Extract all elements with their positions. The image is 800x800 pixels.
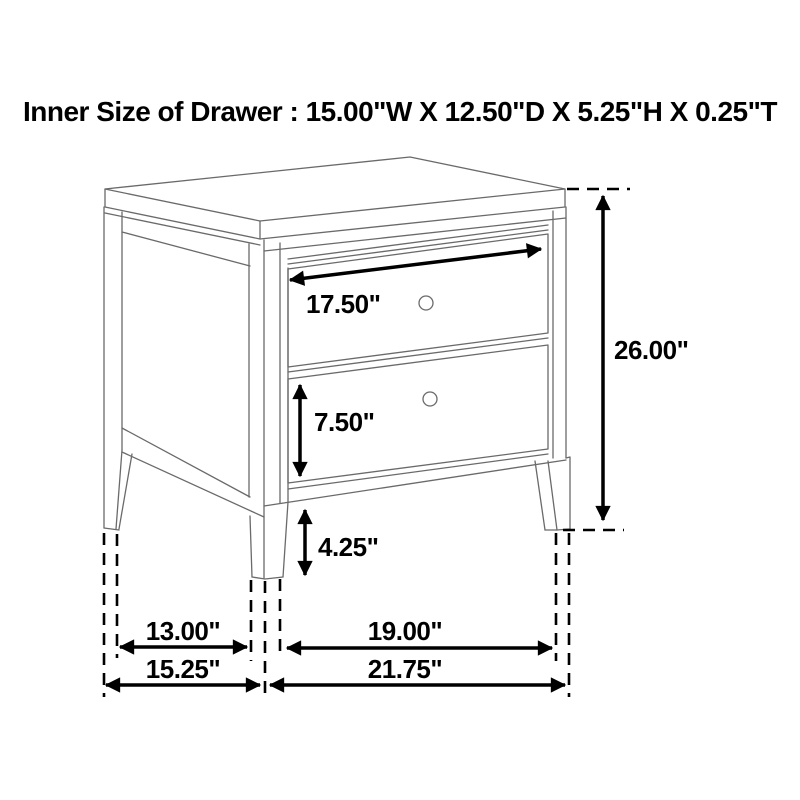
label-bottom-drawer-height: 7.50"	[314, 407, 374, 437]
label-front-inner: 19.00"	[368, 616, 442, 646]
label-overall-height: 26.00"	[614, 335, 688, 365]
drawer-top-knob	[419, 296, 433, 310]
nightstand-diagram-canvas: 17.50" 7.50" 4.25" 26.00" 13.00" 19.00" …	[0, 0, 800, 800]
front-frame	[264, 207, 566, 578]
label-side-inner: 13.00"	[146, 616, 220, 646]
dimension-texts: 17.50" 7.50" 4.25" 26.00" 13.00" 19.00" …	[146, 289, 689, 684]
label-leg-clearance: 4.25"	[318, 532, 378, 562]
leg-front-right	[535, 457, 570, 530]
dimension-arrows	[106, 196, 603, 685]
leg-back-left	[104, 450, 132, 530]
nightstand-drawing	[104, 157, 570, 579]
label-top-drawer-width: 17.50"	[306, 289, 380, 319]
label-overall-depth: 15.25"	[146, 654, 220, 684]
dimension-annotations: 17.50" 7.50" 4.25" 26.00" 13.00" 19.00" …	[104, 189, 688, 697]
dimension-diagram: Inner Size of Drawer : 15.00"W X 12.50"D…	[0, 0, 800, 800]
label-overall-width: 21.75"	[368, 654, 442, 684]
drawer-bottom-knob	[423, 392, 437, 406]
